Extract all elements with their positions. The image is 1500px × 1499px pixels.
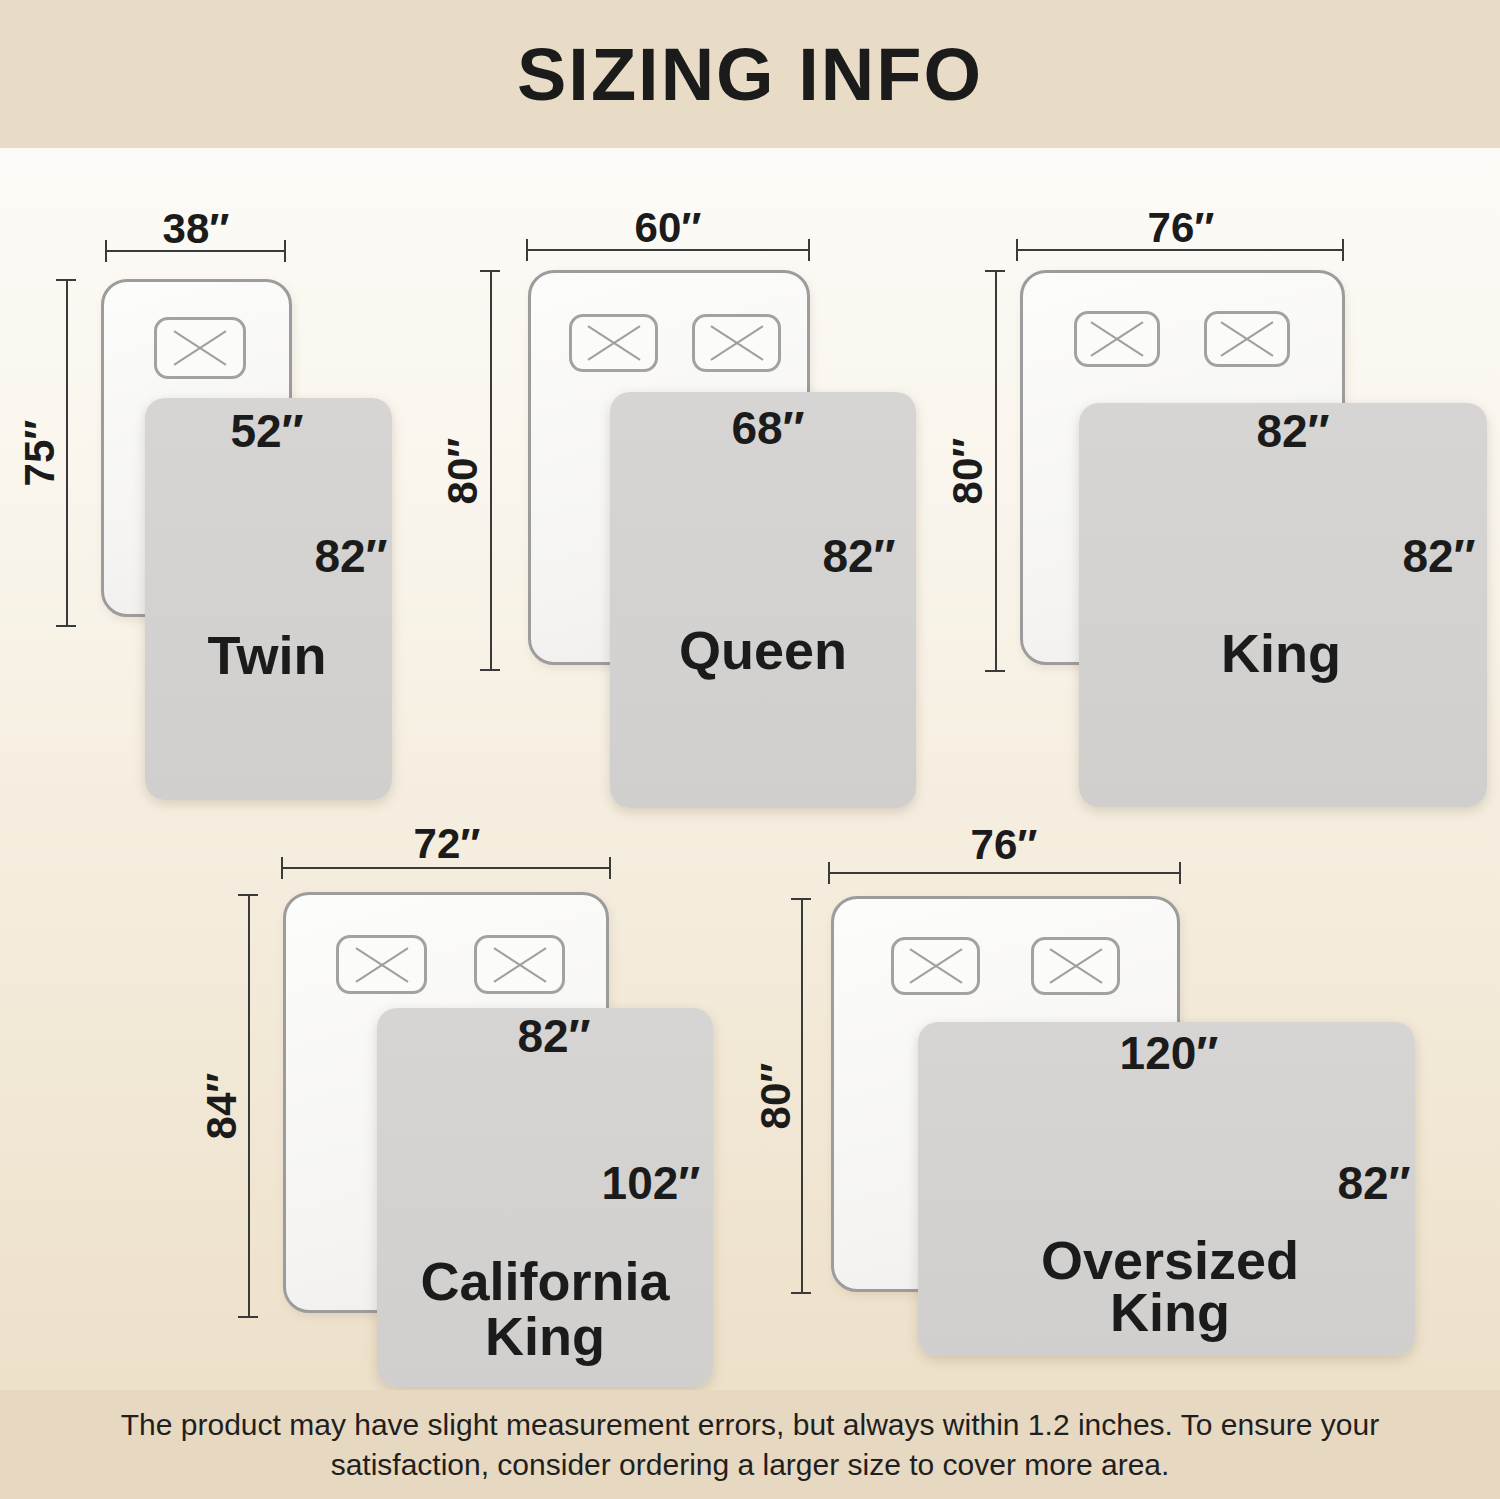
dimension-tick <box>281 857 283 879</box>
blanket-width-label: 82″ <box>1256 404 1329 458</box>
size-name-label-line2: King <box>485 1305 605 1367</box>
width-dimension-line <box>106 250 286 252</box>
width-dimension-line <box>829 872 1181 874</box>
dimension-tick <box>828 862 830 884</box>
blanket-height-label: 82″ <box>822 529 895 583</box>
dimension-tick <box>56 279 76 281</box>
footer-banner: The product may have slight measurement … <box>0 1390 1500 1499</box>
dimension-tick <box>791 898 811 900</box>
blanket-width-label: 120″ <box>1120 1026 1219 1080</box>
blanket-queen: 68″ 82″ Queen <box>610 392 916 808</box>
bed-width-label: 72″ <box>414 820 481 868</box>
dimension-tick <box>985 670 1005 672</box>
disclaimer-line1: The product may have slight measurement … <box>121 1405 1379 1445</box>
pillow <box>336 935 427 994</box>
page-title: SIZING INFO <box>517 32 983 117</box>
dimension-tick <box>238 894 258 896</box>
blanket-height-label: 102″ <box>602 1156 701 1210</box>
width-dimension-line <box>1017 249 1344 251</box>
pillow <box>1031 937 1120 995</box>
height-dimension-line <box>995 271 997 672</box>
blanket-california-king: 82″ 102″ California King <box>377 1008 713 1387</box>
pillow <box>154 317 246 379</box>
pillow <box>891 937 980 995</box>
blanket-height-label: 82″ <box>1337 1156 1410 1210</box>
blanket-king: 82″ 82″ King <box>1079 403 1487 807</box>
blanket-height-label: 82″ <box>1402 529 1475 583</box>
pillow <box>1204 311 1290 367</box>
dimension-tick <box>105 240 107 262</box>
blanket-width-label: 82″ <box>517 1009 590 1063</box>
blanket-width-label: 68″ <box>731 401 804 455</box>
blanket-oversized-king: 120″ 82″ Oversized King <box>918 1022 1415 1356</box>
dimension-tick <box>1179 862 1181 884</box>
dimension-tick <box>480 669 500 671</box>
width-dimension-line <box>282 867 611 869</box>
height-dimension-line <box>801 899 803 1294</box>
bed-width-label: 76″ <box>971 821 1038 869</box>
dimension-tick <box>526 239 528 261</box>
dimension-tick <box>808 239 810 261</box>
size-name-label: King <box>1221 622 1341 684</box>
pillow <box>692 314 781 372</box>
dimension-tick <box>238 1316 258 1318</box>
bed-height-label: 80″ <box>752 1063 800 1130</box>
pillow <box>1074 311 1160 367</box>
sizing-info-graphic: SIZING INFO 38″ 75″ 52″ 82″ Twin 60″ 80″ <box>0 0 1500 1499</box>
pillow <box>569 314 658 372</box>
blanket-height-label: 82″ <box>314 529 387 583</box>
dimension-tick <box>791 1292 811 1294</box>
header-banner: SIZING INFO <box>0 0 1500 148</box>
bed-height-label: 80″ <box>439 438 487 505</box>
size-name-label: Queen <box>679 619 847 681</box>
dimension-tick <box>1342 239 1344 261</box>
disclaimer-line2: satisfaction, consider ordering a larger… <box>331 1445 1170 1485</box>
pillow <box>474 935 565 994</box>
height-dimension-line <box>248 895 250 1318</box>
height-dimension-line <box>66 280 68 627</box>
size-name-label-line1: California <box>420 1250 669 1312</box>
dimension-tick <box>284 240 286 262</box>
bed-height-label: 75″ <box>16 420 64 487</box>
bed-width-label: 38″ <box>163 205 230 253</box>
blanket-width-label: 52″ <box>230 404 303 458</box>
dimension-tick <box>480 270 500 272</box>
size-name-label-line2: King <box>1110 1281 1230 1343</box>
width-dimension-line <box>527 249 810 251</box>
dimension-tick <box>56 625 76 627</box>
dimension-tick <box>609 857 611 879</box>
dimension-tick <box>1016 239 1018 261</box>
blanket-twin: 52″ 82″ Twin <box>145 398 392 800</box>
size-name-label: Twin <box>208 624 327 686</box>
bed-height-label: 84″ <box>198 1073 246 1140</box>
height-dimension-line <box>490 271 492 671</box>
bed-width-label: 60″ <box>635 204 702 252</box>
bed-height-label: 80″ <box>944 438 992 505</box>
dimension-tick <box>985 270 1005 272</box>
bed-width-label: 76″ <box>1148 204 1215 252</box>
